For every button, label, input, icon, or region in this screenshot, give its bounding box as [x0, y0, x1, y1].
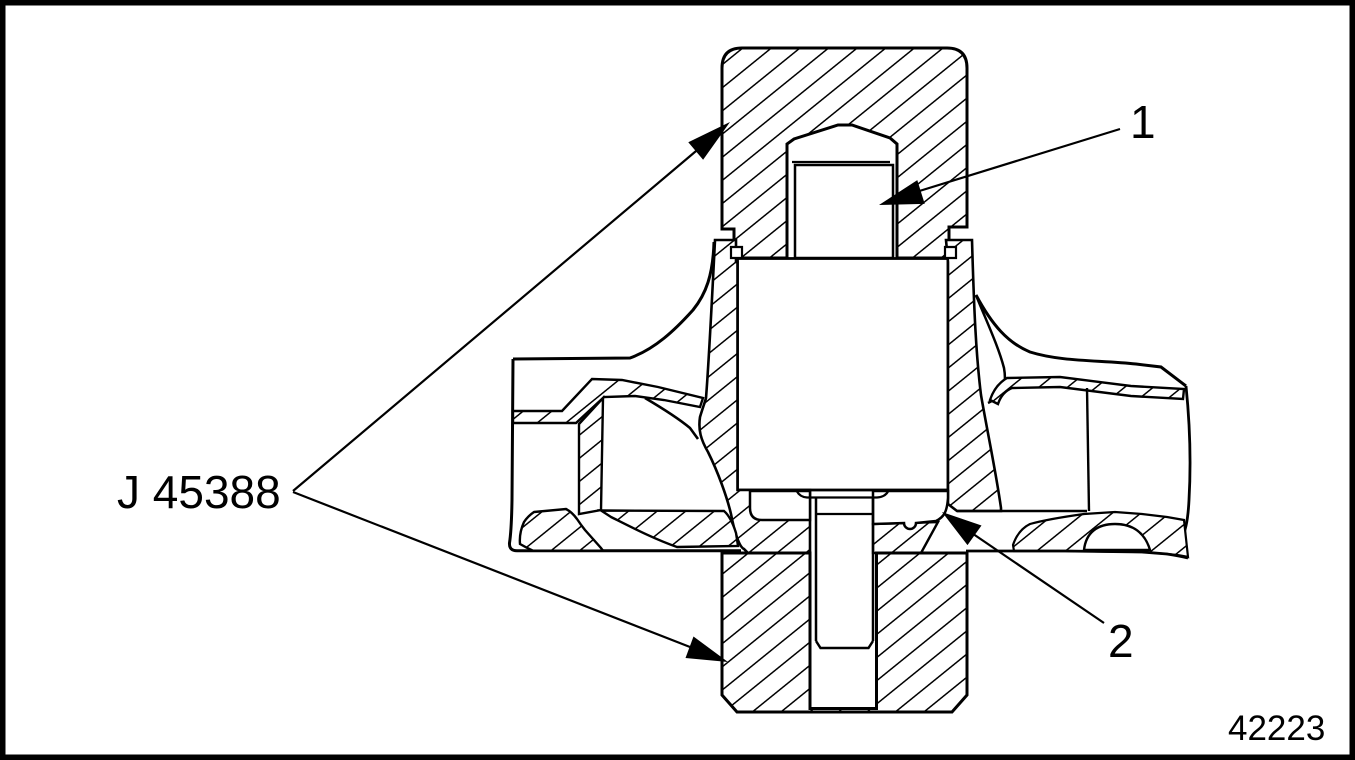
svg-text:J 45388: J 45388	[117, 466, 281, 518]
svg-text:2: 2	[1108, 615, 1134, 667]
svg-text:1: 1	[1130, 96, 1156, 148]
svg-text:42223: 42223	[1228, 709, 1325, 748]
